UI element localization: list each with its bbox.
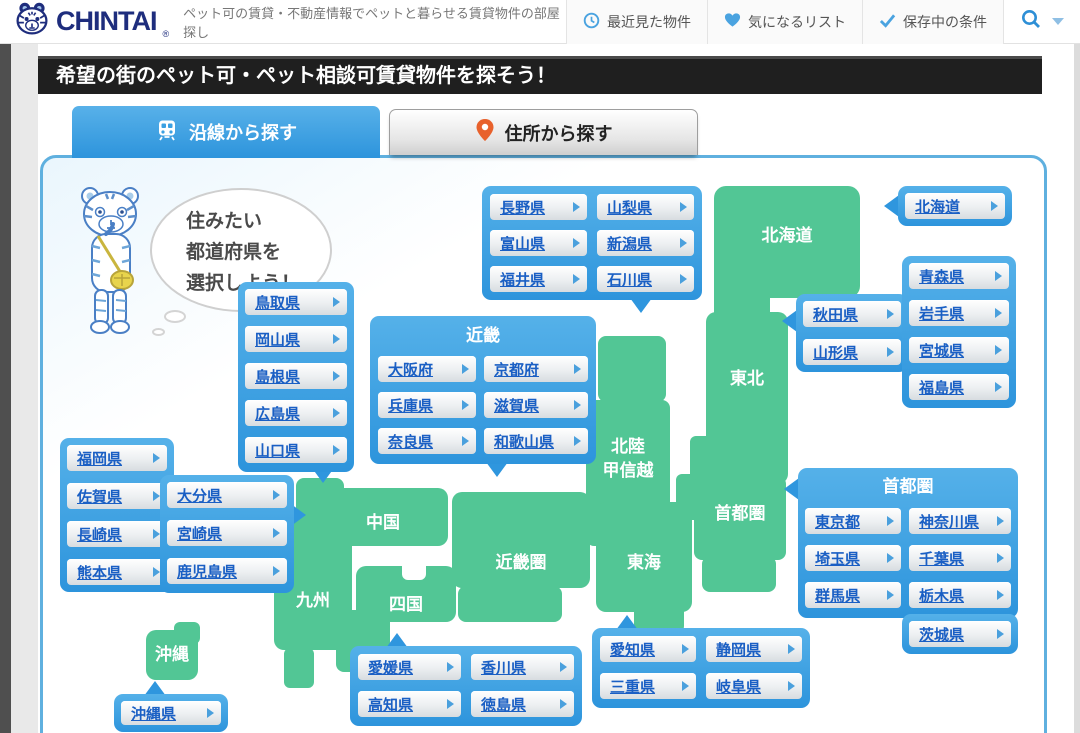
prefecture-button-akita[interactable]: 秋田県 xyxy=(803,301,901,327)
header-nav: 最近見た物件 気になるリスト 保存中の条件 xyxy=(566,0,1080,44)
prefecture-button-tochigi[interactable]: 栃木県 xyxy=(909,582,1011,608)
arrow-icon xyxy=(153,567,160,577)
prefecture-button-toyama[interactable]: 富山県 xyxy=(490,230,587,256)
arrow-icon xyxy=(273,566,280,576)
page-left-gutter xyxy=(0,44,11,733)
region-label-shikoku: 四国 xyxy=(356,590,456,615)
region-label-shutoken: 首都圏 xyxy=(694,499,786,524)
arrow-icon xyxy=(153,529,160,539)
prefecture-button-saitama[interactable]: 埼玉県 xyxy=(805,545,901,571)
map-region-kinkiken xyxy=(452,492,590,588)
arrow-icon xyxy=(995,308,1002,318)
prefecture-button-hyogo[interactable]: 兵庫県 xyxy=(378,392,476,418)
prefecture-button-kochi[interactable]: 高知県 xyxy=(358,691,461,717)
prefecture-group-shutoken-ext: 茨城県 xyxy=(902,614,1018,654)
prefecture-button-okayama[interactable]: 岡山県 xyxy=(245,326,347,352)
arrow-icon xyxy=(995,345,1002,355)
tiger-mascot xyxy=(68,182,154,339)
header-search-area xyxy=(1003,0,1080,44)
arrow-icon xyxy=(153,453,160,463)
tab-search-by-line[interactable]: 沿線から探す xyxy=(72,106,380,158)
prefecture-group-hokkaido: 北海道 xyxy=(898,186,1012,226)
arrow-icon xyxy=(462,436,469,446)
prefecture-group-tohoku-east: 青森県 岩手県 宮城県 福島県 xyxy=(902,256,1016,408)
group-header-shutoken: 首都圏 xyxy=(805,475,1011,499)
prefecture-button-aomori[interactable]: 青森県 xyxy=(909,263,1009,289)
map-region-kyushu xyxy=(284,648,314,688)
arrow-icon xyxy=(887,347,894,357)
nav-label: 保存中の条件 xyxy=(903,12,987,32)
arrow-icon xyxy=(447,662,454,672)
prefecture-button-oita[interactable]: 大分県 xyxy=(167,482,287,508)
prefecture-button-okinawa[interactable]: 沖縄県 xyxy=(121,701,221,725)
heart-icon xyxy=(724,12,741,31)
prefecture-button-kumamoto[interactable]: 熊本県 xyxy=(67,559,167,585)
arrow-icon xyxy=(574,364,581,374)
prefecture-button-kanagawa[interactable]: 神奈川県 xyxy=(909,508,1011,534)
arrow-icon xyxy=(995,382,1002,392)
region-label-hokuriku: 北陸 xyxy=(586,432,670,457)
arrow-icon xyxy=(462,400,469,410)
page: CHINTAI ® ペット可の賃貸・不動産情報でペットと暮らせる賃貸物件の部屋探… xyxy=(0,0,1080,733)
arrow-icon xyxy=(462,364,469,374)
tab-search-by-address[interactable]: 住所から探す xyxy=(389,109,698,155)
page-title: 希望の街のペット可・ペット相談可賃貸物件を探そう！ xyxy=(38,56,1042,94)
prefecture-button-aichi[interactable]: 愛知県 xyxy=(600,636,696,662)
pointer-tail xyxy=(784,478,799,500)
arrow-icon xyxy=(447,699,454,709)
prefecture-button-shizuoka[interactable]: 静岡県 xyxy=(706,636,802,662)
arrow-icon xyxy=(887,516,894,526)
prefecture-button-miyagi[interactable]: 宮城県 xyxy=(909,337,1009,363)
arrow-icon xyxy=(560,662,567,672)
prefecture-button-fukuoka[interactable]: 福岡県 xyxy=(67,445,167,471)
arrow-icon xyxy=(788,681,795,691)
prefecture-group-kinki: 近畿 大阪府 京都府 兵庫県 滋賀県 奈良県 和歌山県 xyxy=(370,316,596,464)
prefecture-button-nara[interactable]: 奈良県 xyxy=(378,428,476,454)
arrow-icon xyxy=(207,708,214,718)
tab-label: 住所から探す xyxy=(505,120,613,146)
prefecture-button-tokushima[interactable]: 徳島県 xyxy=(471,691,574,717)
region-label-tohoku: 東北 xyxy=(706,364,788,389)
map-region-kinkiken xyxy=(458,586,562,622)
prefecture-button-saga[interactable]: 佐賀県 xyxy=(67,483,167,509)
arrow-icon xyxy=(995,271,1002,281)
region-label-okinawa: 沖縄 xyxy=(146,640,198,665)
prefecture-button-hokkaido[interactable]: 北海道 xyxy=(905,193,1005,219)
pointer-tail xyxy=(486,462,508,477)
prefecture-button-gifu[interactable]: 岐阜県 xyxy=(706,673,802,699)
nav-label: 最近見た物件 xyxy=(607,12,691,32)
prefecture-group-okinawa: 沖縄県 xyxy=(114,694,228,732)
map-region-hokuriku-koshinetsu xyxy=(598,336,666,402)
pointer-tail xyxy=(630,298,652,313)
site-header: CHINTAI ® ペット可の賃貸・不動産情報でペットと暮らせる賃貸物件の部屋探… xyxy=(0,0,1080,44)
arrow-icon xyxy=(680,202,687,212)
caret-down-icon[interactable] xyxy=(1052,18,1064,25)
prefecture-button-tokyo[interactable]: 東京都 xyxy=(805,508,901,534)
arrow-icon xyxy=(574,400,581,410)
prefecture-button-mie[interactable]: 三重県 xyxy=(600,673,696,699)
search-icon[interactable] xyxy=(1020,8,1042,35)
prefecture-group-tohoku-west: 秋田県 山形県 xyxy=(796,294,908,372)
region-label-hokkaido: 北海道 xyxy=(714,221,860,246)
pointer-tail xyxy=(884,195,899,217)
speech-bubble-dot xyxy=(164,310,186,323)
prefecture-group-koshinetsu: 長野県 山梨県 富山県 新潟県 福井県 石川県 xyxy=(482,186,702,300)
prefecture-button-yamagata[interactable]: 山形県 xyxy=(803,339,901,365)
prefecture-button-ehime[interactable]: 愛媛県 xyxy=(358,654,461,680)
nav-recent-items[interactable]: 最近見た物件 xyxy=(566,0,707,44)
prefecture-button-ishikawa[interactable]: 石川県 xyxy=(597,266,694,292)
prefecture-button-gunma[interactable]: 群馬県 xyxy=(805,582,901,608)
arrow-icon xyxy=(573,274,580,284)
arrow-icon xyxy=(273,528,280,538)
arrow-icon xyxy=(333,371,340,381)
prefecture-group-kyushu-east: 大分県 宮崎県 鹿児島県 xyxy=(160,475,294,593)
prefecture-button-yamanashi[interactable]: 山梨県 xyxy=(597,194,694,220)
arrow-icon xyxy=(997,516,1004,526)
arrow-icon xyxy=(153,491,160,501)
site-tagline: ペット可の賃貸・不動産情報でペットと暮らせる賃貸物件の部屋探し xyxy=(183,3,566,41)
prefecture-button-hiroshima[interactable]: 広島県 xyxy=(245,400,347,426)
group-header-kinki: 近畿 xyxy=(378,324,588,348)
prefecture-button-ibaraki[interactable]: 茨城県 xyxy=(909,621,1011,647)
clock-icon xyxy=(583,12,600,32)
arrow-icon xyxy=(887,309,894,319)
region-label-tokai: 東海 xyxy=(596,548,692,573)
page-right-gutter xyxy=(1074,44,1080,733)
region-label-chugoku: 中国 xyxy=(318,508,448,533)
map-pin-icon xyxy=(475,118,495,147)
arrow-icon xyxy=(991,201,998,211)
arrow-icon xyxy=(997,590,1004,600)
arrow-icon xyxy=(333,297,340,307)
prefecture-button-yamaguchi[interactable]: 山口県 xyxy=(245,437,347,463)
prefecture-button-wakayama[interactable]: 和歌山県 xyxy=(484,428,588,454)
prefecture-button-nagasaki[interactable]: 長崎県 xyxy=(67,521,167,547)
region-label-koshinetsu: 甲信越 xyxy=(586,456,670,481)
arrow-icon xyxy=(997,629,1004,639)
prefecture-group-shikoku: 愛媛県 香川県 高知県 徳島県 xyxy=(350,646,582,726)
prefecture-button-kagoshima[interactable]: 鹿児島県 xyxy=(167,558,287,584)
prefecture-group-tokai: 愛知県 静岡県 三重県 岐阜県 xyxy=(592,628,810,708)
prefecture-button-shiga[interactable]: 滋賀県 xyxy=(484,392,588,418)
nav-saved-conditions[interactable]: 保存中の条件 xyxy=(862,0,1003,44)
registered-mark: ® xyxy=(163,29,170,39)
logo-wordmark: CHINTAI xyxy=(56,6,157,37)
arrow-icon xyxy=(680,238,687,248)
tiger-logo-icon xyxy=(14,1,50,42)
region-label-kinkiken: 近畿圏 xyxy=(452,548,590,573)
prefecture-group-kyushu-west: 福岡県 佐賀県 長崎県 熊本県 xyxy=(60,438,174,592)
prefecture-button-niigata[interactable]: 新潟県 xyxy=(597,230,694,256)
arrow-icon xyxy=(997,553,1004,563)
arrow-icon xyxy=(887,590,894,600)
prefecture-button-tottori[interactable]: 鳥取県 xyxy=(245,289,347,315)
prefecture-button-osaka[interactable]: 大阪府 xyxy=(378,356,476,382)
arrow-icon xyxy=(682,644,689,654)
speech-line: 都道府県を xyxy=(186,237,330,264)
page-left-gutter-light xyxy=(11,44,38,733)
prefecture-button-kyoto[interactable]: 京都府 xyxy=(484,356,588,382)
train-icon xyxy=(155,118,179,147)
arrow-icon xyxy=(273,490,280,500)
arrow-icon xyxy=(333,408,340,418)
arrow-icon xyxy=(680,274,687,284)
prefecture-button-chiba[interactable]: 千葉県 xyxy=(909,545,1011,571)
prefecture-group-chugoku: 鳥取県 岡山県 島根県 広島県 山口県 xyxy=(238,282,354,472)
check-icon xyxy=(879,13,896,31)
map-region-shutoken xyxy=(702,556,776,592)
arrow-icon xyxy=(573,202,580,212)
prefecture-button-nagano[interactable]: 長野県 xyxy=(490,194,587,220)
prefecture-button-fukushima[interactable]: 福島県 xyxy=(909,374,1009,400)
prefecture-button-fukui[interactable]: 福井県 xyxy=(490,266,587,292)
nav-favorites-list[interactable]: 気になるリスト xyxy=(707,0,862,44)
arrow-icon xyxy=(573,238,580,248)
nav-label: 気になるリスト xyxy=(748,12,846,32)
prefecture-button-shimane[interactable]: 島根県 xyxy=(245,363,347,389)
arrow-icon xyxy=(788,644,795,654)
arrow-icon xyxy=(682,681,689,691)
map-region-tohoku xyxy=(706,312,788,484)
arrow-icon xyxy=(333,445,340,455)
map-notch xyxy=(402,560,426,580)
tab-label: 沿線から探す xyxy=(189,119,297,145)
arrow-icon xyxy=(574,436,581,446)
arrow-icon xyxy=(887,553,894,563)
prefecture-button-miyazaki[interactable]: 宮崎県 xyxy=(167,520,287,546)
prefecture-group-shutoken: 首都圏 東京都 神奈川県 埼玉県 千葉県 群馬県 栃木県 xyxy=(798,468,1018,618)
speech-line: 住みたい xyxy=(186,206,330,233)
speech-bubble-dot xyxy=(152,328,165,336)
arrow-icon xyxy=(560,699,567,709)
pointer-tail xyxy=(782,310,797,332)
prefecture-button-kagawa[interactable]: 香川県 xyxy=(471,654,574,680)
arrow-icon xyxy=(333,334,340,344)
chintai-logo[interactable]: CHINTAI ® xyxy=(0,1,169,42)
prefecture-button-iwate[interactable]: 岩手県 xyxy=(909,300,1009,326)
